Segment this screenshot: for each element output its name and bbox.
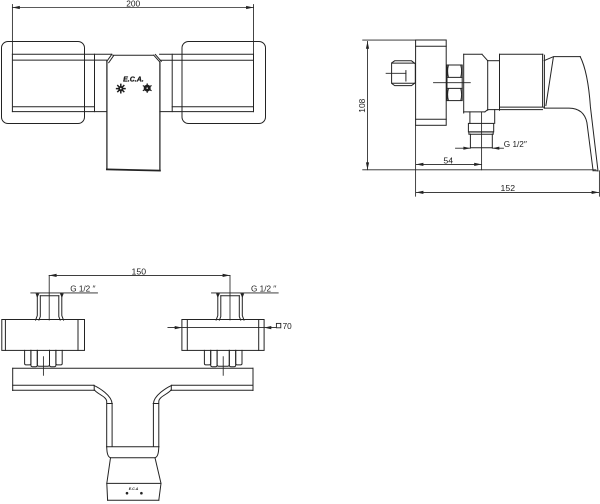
svg-text:150: 150 — [132, 267, 147, 277]
svg-text:G 1/2 ′′: G 1/2 ′′ — [70, 285, 96, 294]
svg-text:E.C.A.: E.C.A. — [123, 76, 144, 83]
svg-text:54: 54 — [443, 155, 453, 165]
svg-text:70: 70 — [283, 322, 293, 331]
svg-text:108: 108 — [357, 98, 367, 112]
svg-text:200: 200 — [126, 0, 140, 8]
svg-text:E.C.A: E.C.A — [129, 487, 139, 491]
svg-text:G 1/2′′: G 1/2′′ — [504, 140, 528, 149]
svg-text:G 1/2 ′′: G 1/2 ′′ — [251, 285, 277, 294]
svg-text:152: 152 — [501, 183, 516, 193]
